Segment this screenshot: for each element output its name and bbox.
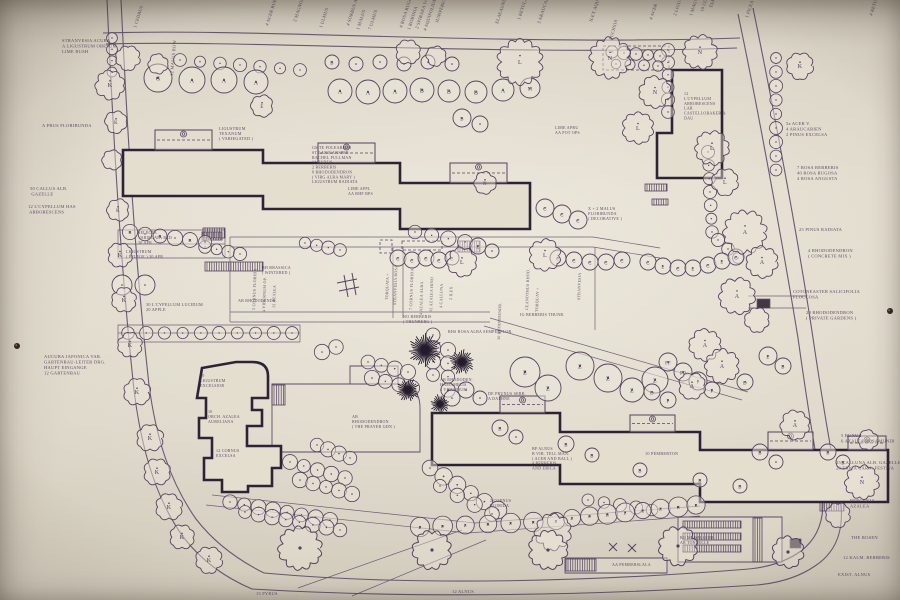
circle-tree-letter: A: [501, 88, 506, 94]
circle-tree-letter: Z: [606, 376, 610, 382]
site-plan-photo: ZEZBZEZZEBZEZBEBBBGAAAAAABBBAMBBECCCCCCC…: [0, 0, 900, 600]
plant-label: 25 CALLUNA ALB. GAZELLE20 ERICA CARN. FE…: [836, 460, 900, 470]
plant-label: A PRUS FLORIBUNDA: [42, 123, 92, 128]
shrub-dot: [371, 377, 373, 379]
shrub-dot: [367, 361, 368, 362]
shrub-dot: [285, 519, 286, 520]
tree-letter: L: [518, 60, 522, 66]
circle-tree-letter: Z: [578, 364, 582, 370]
shrub-dot: [111, 60, 112, 61]
tree-dot: [149, 433, 151, 435]
shrub-dot: [328, 247, 329, 248]
circle-tree-letter: C: [410, 259, 413, 264]
shrub-dot: [775, 155, 776, 156]
circle-tree-letter: L: [661, 265, 664, 270]
shrub-dot: [414, 231, 415, 232]
tree-letter: L: [723, 180, 727, 186]
plant-label: 2 ILEX: [448, 286, 453, 300]
plant-label: 4 RHODODENDRON( CONCRETE MIX ): [808, 248, 853, 258]
shrub-dot: [432, 374, 433, 375]
shrub-letter: E: [694, 503, 697, 508]
tree-dot: [761, 257, 763, 259]
shrub-dot: [255, 332, 256, 333]
shrub-dot: [244, 511, 245, 512]
spiky-core: [460, 360, 464, 364]
circle-tree-letter: A: [222, 78, 227, 84]
shrub-dot: [327, 449, 329, 451]
circle-tree-letter: C: [396, 257, 399, 262]
dashed-bed: [402, 241, 442, 250]
circle-tree-dot: [451, 63, 453, 65]
shrub-dot: [775, 127, 776, 128]
shrub-dot: [667, 74, 668, 75]
plant-label: LIGUSTRUM( PFLEGE ) 30 APR: [126, 249, 163, 259]
tree-letter: K: [122, 298, 127, 304]
shrub-dot: [291, 332, 292, 333]
circle-tree-letter: Z: [630, 388, 634, 394]
tree-letter: L: [460, 260, 464, 266]
plant-label: 4 AZALEA ALBA: [418, 281, 424, 315]
circle-tree-letter: FF: [665, 361, 671, 366]
shrub-dot: [447, 349, 449, 351]
shrub-letter: Z: [464, 523, 467, 528]
circle-tree-letter: E: [476, 245, 479, 250]
circle-tree-dot: [355, 63, 357, 65]
tree-letter: N: [483, 182, 487, 187]
shrub-dot: [708, 165, 709, 166]
tree-dot: [861, 476, 863, 478]
shrub-dot: [259, 66, 260, 67]
circle-tree-letter: F: [711, 389, 714, 394]
shrub-dot: [239, 64, 240, 65]
shrub-dot: [279, 68, 280, 69]
tree-dot: [724, 177, 726, 179]
tree-dot: [544, 250, 546, 252]
circle-tree-letter: C: [604, 261, 607, 266]
shrub-dot: [304, 242, 305, 243]
shrub-dot: [326, 527, 328, 529]
shrub-letter: Z: [418, 525, 421, 530]
plant-label: 1 CEDRUS: [132, 5, 144, 29]
circle-tree-letter: B: [758, 451, 761, 456]
shrub-dot: [775, 57, 776, 58]
spike: [461, 350, 462, 360]
shrub-dot: [321, 351, 323, 353]
shrub-dot: [457, 495, 458, 496]
circle-tree-dot: [515, 436, 517, 438]
shrub-dot: [647, 54, 648, 55]
plant-label: AA PEMBERSLALA: [612, 562, 651, 567]
circle-tree-letter: B: [498, 427, 501, 432]
shrub-dot: [218, 332, 219, 333]
circle-tree-letter: E: [766, 355, 769, 360]
fluffy-tree: [102, 150, 122, 170]
shrub-letter: Z: [659, 507, 662, 512]
circle-tree-letter: Z: [653, 378, 657, 384]
shrub-dot: [775, 113, 776, 114]
shrub-dot: [643, 65, 644, 66]
circle-tree-dot: [479, 397, 481, 399]
plant-label: 50 CALLUS ALB. GAZELLE: [30, 186, 68, 196]
shrub-dot: [775, 141, 776, 142]
tree-letter: K: [114, 121, 118, 126]
shrub-dot: [339, 529, 340, 530]
shrub-letter: B: [486, 522, 489, 527]
plant-label: CEANOTHUS RHOD.: [524, 269, 530, 310]
tree-letter: K: [167, 505, 172, 511]
street-tree-dot: [676, 544, 679, 547]
plant-label: LIME APPLAA RHF BPS: [348, 186, 373, 196]
circle-tree-letter: C: [706, 264, 709, 269]
plant-label: 2 CORNUSFLORIDA: [490, 498, 511, 508]
circle-tree-letter: B: [460, 117, 463, 122]
spiky-core: [422, 347, 427, 352]
plant-label: 7 ROSA BERBERIS40 ROSA RUGOSA4 ROSA ANGU…: [797, 165, 839, 181]
plant-label: 7 ULMUS: [367, 9, 378, 31]
plant-label: ILEX AQUIF.: [588, 0, 602, 22]
plant-label: 20 RHODODENDRON( PRIVATE GARDENS ): [806, 310, 857, 320]
tree-letter: A: [743, 230, 748, 236]
circle-tree-letter: C: [424, 257, 427, 262]
fluffy-tree: [116, 46, 140, 70]
shrub-dot: [229, 501, 230, 502]
circle-tree-letter: C: [437, 259, 440, 264]
shrub-dot: [394, 368, 396, 370]
circle-tree-letter: C: [543, 207, 546, 212]
plant-label: 4 ACER RUBR.: [264, 0, 279, 26]
shrub-dot: [381, 365, 382, 366]
shrub-dot: [182, 332, 183, 333]
tree-dot: [261, 102, 263, 104]
shrub-dot: [484, 501, 486, 503]
circle-tree-letter: L: [691, 267, 694, 272]
tree-letter: A: [760, 260, 765, 266]
street-tree-dot: [298, 546, 301, 549]
shrub-dot: [303, 465, 304, 466]
tree-letter: L: [636, 126, 640, 132]
shrub-dot: [407, 371, 409, 373]
shrub-letter: B: [188, 238, 191, 243]
road-line: [252, 585, 757, 595]
shrub-dot: [439, 485, 440, 486]
plant-label: ELAEAGNUS: [494, 0, 508, 24]
shrub-dot: [432, 334, 433, 335]
tree-dot: [799, 61, 801, 63]
tree-dot: [136, 387, 138, 389]
plant-label: 1 BETULA: [516, 0, 528, 20]
pin-highlight: [888, 309, 890, 311]
plant-label: JUNIPERUS +: [434, 0, 448, 23]
shrub-letter: B: [128, 230, 131, 235]
shrub-dot: [657, 65, 658, 66]
shrub-dot: [219, 63, 220, 64]
shrub-dot: [667, 49, 668, 50]
circle-tree-letter: C: [576, 219, 579, 224]
shrub-dot: [711, 218, 712, 219]
tree-dot: [744, 225, 746, 227]
terrace-outline: [272, 384, 420, 452]
tree-letter: K: [155, 470, 160, 476]
shrub-dot: [335, 346, 336, 347]
plant-label: 4 ACER: [648, 3, 658, 20]
circle-tree-letter: B: [564, 443, 567, 448]
plant-label: 25 PINUS RADIATA: [799, 227, 843, 232]
circle-tree-letter: A: [254, 80, 259, 86]
tree-letter: L: [710, 146, 714, 152]
pin: [14, 343, 20, 349]
road-line: [103, 32, 740, 40]
shrub-dot: [710, 205, 711, 206]
road-line: [264, 569, 749, 581]
shrub-dot: [775, 99, 776, 100]
tree-dot: [691, 381, 693, 383]
tree-dot: [699, 46, 701, 48]
tree-letter: A: [793, 423, 798, 429]
shrub-dot: [667, 111, 668, 112]
circle-tree-letter: D: [743, 381, 747, 386]
plant-label: X + 2 MALUSFLORIBUNDA( DECORATIVE ): [588, 206, 622, 221]
circle-tree-dot: [479, 123, 481, 125]
shrub-dot: [146, 332, 147, 333]
tree-dot: [109, 80, 111, 82]
shrub-dot: [111, 49, 112, 50]
circle-tree-dot: [144, 284, 146, 286]
tree-dot: [168, 502, 170, 504]
shrub-dot: [271, 516, 273, 518]
circle-tree-letter: M: [528, 87, 533, 92]
shrub-dot: [216, 249, 217, 250]
shrub-dot: [349, 457, 350, 458]
plant-label: 5a ACER V.4 ARAUCARIEN2 PINUS EXCELSA: [786, 121, 828, 137]
shrub-dot: [711, 231, 712, 232]
spike: [425, 352, 426, 367]
plant-label: 12 AZALEA: [271, 285, 277, 308]
tree-dot: [721, 360, 723, 362]
shrub-letter: B: [677, 505, 680, 510]
shrub-dot: [775, 169, 776, 170]
tree-letter: K: [118, 253, 123, 259]
shrub-dot: [385, 381, 386, 382]
plant-label: 2 MAGNOLIA: [292, 0, 306, 22]
plant-label: 7 CORNUS FLORIDA: [408, 268, 414, 310]
shrub-dot: [258, 514, 259, 515]
circle-tree-letter: G: [156, 76, 161, 82]
circle-tree-letter: C: [620, 259, 623, 264]
shrub-dot: [443, 476, 445, 478]
plant-label: IG BERBERIS THUNB.: [520, 312, 565, 317]
tree-letter: N: [653, 90, 658, 96]
plant-label: 30 L'CYPELLUM LUCIDUM20 APPLE: [146, 302, 203, 312]
shrub-dot: [344, 477, 345, 478]
shrub-dot: [709, 178, 710, 179]
plant-label: TAMARIX: [708, 0, 720, 8]
dashed-bed: [380, 240, 392, 253]
circle-tree-letter: B: [826, 451, 829, 456]
tree-letter: A: [735, 294, 740, 300]
tree-dot: [637, 123, 639, 125]
shrub-dot: [464, 241, 465, 242]
plant-label: 10 PEMBERTON: [645, 451, 678, 456]
shrub-dot: [301, 514, 302, 515]
tree-letter: K: [108, 83, 113, 89]
circle-tree-letter: A: [190, 78, 195, 84]
shrub-dot: [199, 61, 200, 62]
plant-label: 12 AZALEA HINO: [428, 277, 434, 312]
walk-line: [593, 237, 660, 248]
tree-letter: K: [116, 209, 120, 214]
tree-letter: A: [703, 343, 708, 349]
circle-tree-dot: [491, 250, 493, 252]
spiky-core: [406, 388, 410, 392]
shrub-dot: [667, 62, 668, 63]
circle-tree-letter: Z: [523, 370, 527, 376]
court-line: [339, 287, 359, 291]
plant-label: 30 RHODODENDR.: [496, 302, 502, 340]
shrub-dot: [164, 332, 165, 333]
shrub-letter: E: [441, 524, 444, 529]
plant-label: THE ROSEN: [851, 535, 878, 540]
tree-dot: [484, 179, 486, 181]
tree-dot: [711, 142, 713, 144]
shrub-letter: E: [641, 509, 644, 514]
shrub-dot: [317, 469, 318, 470]
hatch-frame: [652, 199, 668, 205]
circle-tree-letter: B: [420, 88, 424, 94]
circle-tree-letter: L: [720, 260, 723, 265]
shrub-dot: [717, 239, 718, 240]
plant-label: 4 BETULA: [868, 0, 880, 16]
shrub-dot: [474, 504, 476, 506]
street-tree-dot: [786, 550, 789, 553]
circle-tree-dot: [451, 397, 453, 399]
shrub-letter: B: [606, 512, 609, 517]
shrub-dot: [179, 59, 180, 60]
circle-tree-letter: C: [646, 261, 649, 266]
tree-letter: K: [207, 558, 212, 564]
circle-tree-letter: C: [560, 213, 563, 218]
fluffy-tree: [745, 308, 769, 332]
shrub-dot: [325, 486, 326, 487]
shrub-dot: [431, 235, 432, 236]
court-line: [344, 275, 348, 297]
tree-letter: A: [690, 384, 695, 390]
shrub-dot: [470, 492, 472, 494]
plant-label: COTONEASTER SALICIFOLIAFLOCCOSA: [793, 289, 861, 299]
plant-label: RHS ROSA ALBA SEMPERFLOR.: [448, 329, 513, 334]
plant-label: LIGUSTRUMTEXANUM( VARIEGATED ): [219, 126, 254, 141]
shrub-dot: [429, 467, 431, 469]
circle-tree-letter: B: [590, 454, 593, 459]
street-tree-dot: [546, 548, 549, 551]
circle-tree-letter: B: [474, 90, 478, 96]
shrub-letter: E: [532, 520, 535, 525]
tree-letter: E: [260, 105, 263, 110]
tree-dot: [117, 206, 119, 208]
tree-letter: N: [608, 56, 613, 62]
shrub-dot: [659, 55, 660, 56]
site-plan-svg: ZEZBZEZZEBZEZBEBBBGAAAAAABBBAMBBECCCCCCC…: [0, 0, 900, 600]
plant-label: 1 ULMUS: [318, 7, 329, 29]
plant-label: SELECTAVARIEGATA BED30 APR: [138, 230, 172, 245]
circle-tree-letter: B: [781, 365, 784, 370]
shrub-dot: [775, 71, 776, 72]
shrub-dot: [351, 493, 353, 495]
shrub-dot: [299, 522, 300, 523]
shrub-dot: [338, 453, 340, 455]
circle-tree-letter: D: [650, 391, 654, 396]
circle-tree-letter: C: [676, 267, 679, 272]
plant-label: EXIST. ALNUS: [838, 572, 871, 577]
shrub-dot: [338, 490, 339, 491]
plant-label: LIME APRUAA POT OPS: [555, 125, 580, 135]
tree-letter: K: [180, 535, 185, 541]
tree-letter: L: [543, 253, 547, 259]
circle-tree-letter: A: [338, 89, 343, 95]
tree-letter: K: [148, 436, 153, 442]
tree-letter: N: [860, 480, 865, 486]
tree-dot: [115, 118, 117, 120]
plant-label: TORQUAY +: [534, 287, 540, 312]
shrub-dot: [289, 461, 290, 462]
shrub-letter: Z: [624, 510, 627, 515]
shrub-dot: [299, 479, 301, 481]
shrub-dot: [273, 332, 274, 333]
tree-dot: [794, 420, 796, 422]
spiky-core: [438, 402, 441, 405]
circle-tree-dot: [121, 284, 123, 286]
tree-dot: [519, 55, 521, 57]
shrub-dot: [775, 85, 776, 86]
shrub-dot: [316, 444, 317, 445]
plant-label: 5 CORNUS FLORIDA: [251, 268, 257, 310]
shrub-letter: Z: [570, 516, 573, 521]
tree-dot: [461, 257, 463, 259]
circle-tree-letter: A: [366, 90, 371, 96]
circle-tree-letter: A: [393, 89, 398, 95]
shrub-dot: [330, 473, 332, 475]
shrub-dot: [456, 484, 458, 486]
plant-label: 12 ALNUS: [452, 589, 474, 594]
plant-label: 2 LIGUSTRUM: [672, 0, 687, 16]
shrub-dot: [174, 237, 176, 239]
shrub-dot: [312, 483, 313, 484]
plant-label: 3 ARAUCARIA: [536, 0, 551, 24]
plant-label: FUCHSIA: [608, 18, 618, 40]
tree-letter: K: [135, 390, 140, 396]
plant-label: 15 PYRUS: [256, 591, 278, 596]
circle-tree-letter: B: [447, 89, 451, 95]
tree-dot: [654, 87, 656, 89]
circle-tree-letter: P: [667, 399, 670, 404]
circle-tree-letter: B: [330, 61, 333, 66]
circle-tree-letter: C: [572, 259, 575, 264]
circle-tree-dot: [775, 461, 777, 463]
plant-label: STRANVESIA: [576, 272, 582, 300]
tree-letter: A: [720, 364, 725, 370]
tree-dot: [704, 340, 706, 342]
road-line: [106, 43, 737, 50]
shrub-dot: [587, 499, 588, 500]
shrub-dot: [727, 248, 728, 249]
shrub-dot: [111, 37, 112, 38]
tree-letter: N: [698, 50, 703, 56]
tree-dot: [156, 467, 158, 469]
shrub-dot: [204, 241, 205, 242]
plant-label: STRANVESIA ROSA: [392, 265, 398, 305]
tree-letter: K: [128, 343, 133, 349]
shrub-dot: [237, 332, 238, 333]
shrub-dot: [239, 253, 240, 254]
